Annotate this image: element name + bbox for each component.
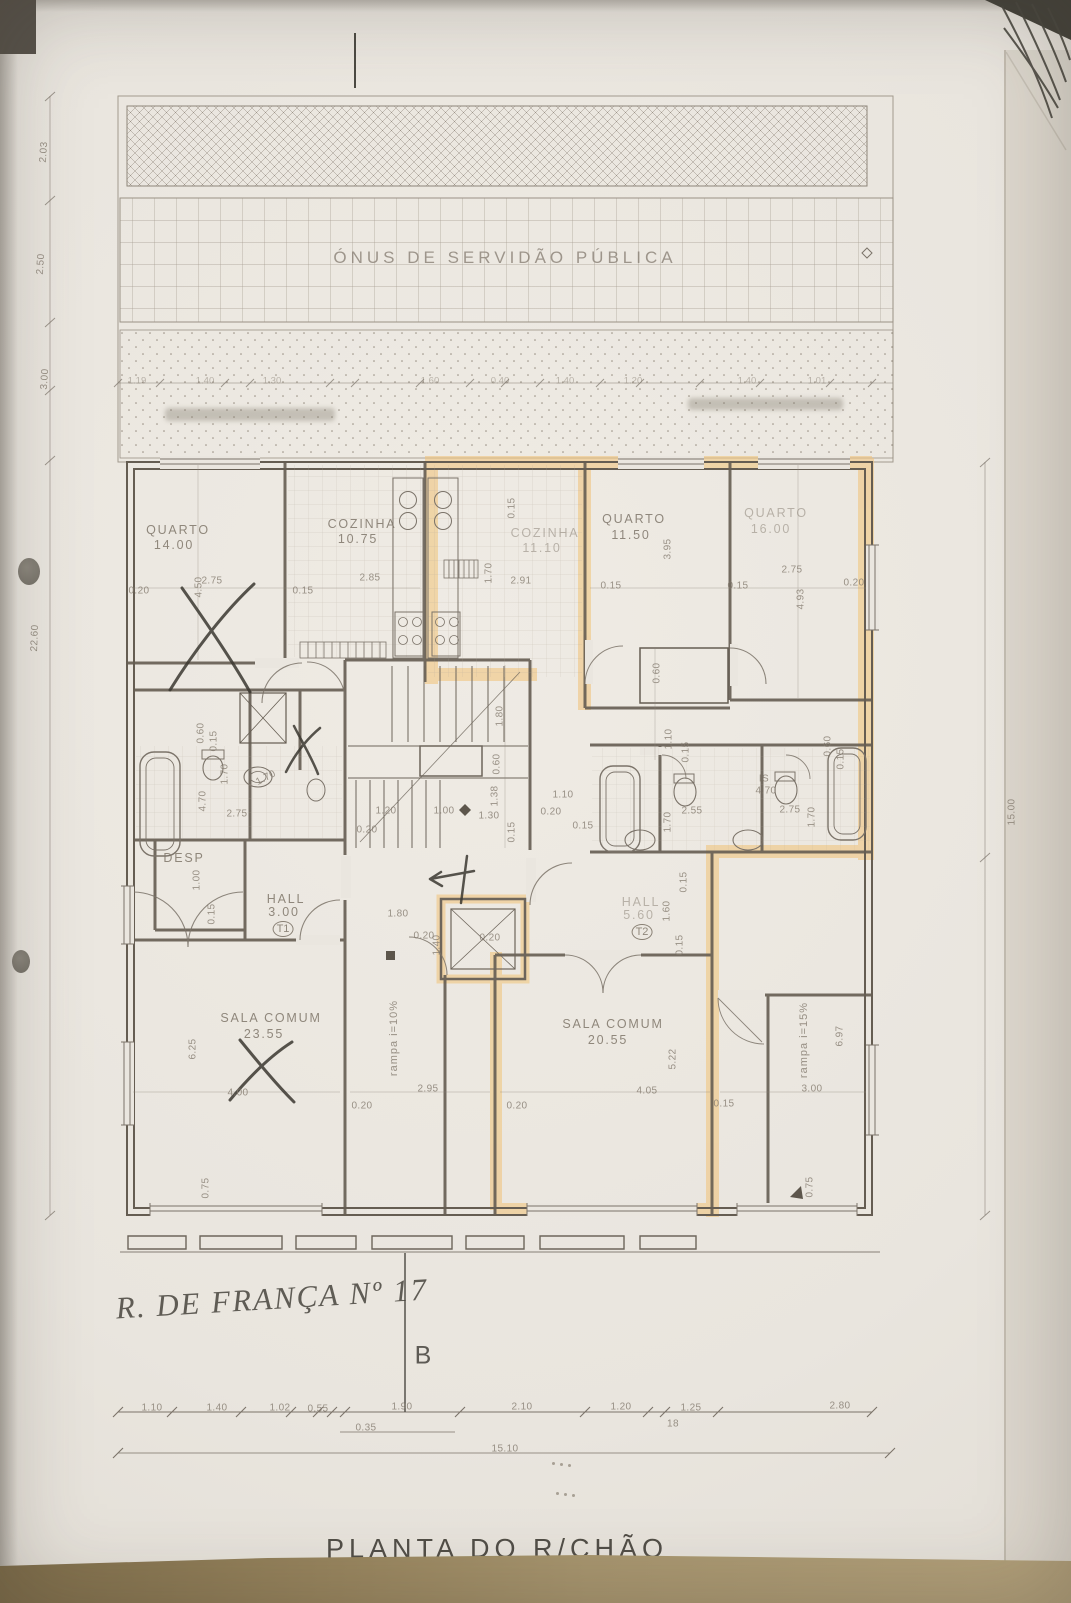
dim-label: 1.70 <box>807 806 818 827</box>
dim-label: 1.10 <box>141 1403 162 1414</box>
room-label-quarto-1: QUARTO <box>146 523 210 537</box>
dim-label: 18 <box>667 1419 679 1430</box>
dim-label: 1.01 <box>808 376 827 387</box>
dim-label: 2.80 <box>829 1401 850 1412</box>
room-label-sala-2: SALA COMUM <box>562 1017 663 1031</box>
ink-blob <box>12 950 30 973</box>
dim-label: 0.15 <box>836 748 847 769</box>
dim-label: 0.20 <box>506 1101 527 1112</box>
dim-label: 3.00 <box>801 1084 822 1095</box>
dot-mark <box>572 1494 575 1497</box>
illegible-stamp <box>165 408 335 421</box>
dim-label: 1.20 <box>610 1402 631 1413</box>
dim-label: 2.50 <box>35 253 47 275</box>
dim-label: 0.20 <box>356 825 377 836</box>
dim-label: 1.20 <box>375 806 396 817</box>
dim-label: 4.05 <box>636 1086 657 1097</box>
room-area-sala-2: 20.55 <box>588 1033 628 1047</box>
illegible-stamp <box>688 398 843 410</box>
dim-label: 0.15 <box>292 586 313 597</box>
dim-label: 0.15 <box>507 821 518 842</box>
dim-label: 1.80 <box>387 909 408 920</box>
photo-of-floor-plan: ÓNUS DE SERVIDÃO PÚBLICA QUARTO14.00COZI… <box>0 0 1071 1603</box>
dim-label: 1.25 <box>680 1403 701 1414</box>
dim-label: 6.97 <box>835 1025 846 1046</box>
dot-mark <box>560 1463 563 1466</box>
ramp-label-left: rampa i=10% <box>388 1000 400 1076</box>
dim-label: 1.40 <box>556 376 575 387</box>
dim-label: 1.40 <box>432 934 443 955</box>
dim-label: 0.15 <box>713 1099 734 1110</box>
dim-label: 4.93 <box>796 588 807 609</box>
dim-label: 0.15 <box>675 934 686 955</box>
dim-label: 3.00 <box>39 368 51 390</box>
room-label-quarto-3: QUARTO <box>744 506 808 520</box>
dim-label: 0.60 <box>492 753 503 774</box>
dim-label: 1.30 <box>478 811 499 822</box>
room-area-quarto-1: 14.00 <box>154 538 194 552</box>
room-area-is: 4.70 <box>755 786 776 797</box>
room-label-quarto-2: QUARTO <box>602 512 666 526</box>
dim-label: 0.20 <box>128 586 149 597</box>
dim-label: 1.80 <box>495 705 506 726</box>
room-label-sala-1: SALA COMUM <box>220 1011 321 1025</box>
dim-label: 0.20 <box>479 933 500 944</box>
dim-label: 0.15 <box>600 581 621 592</box>
dim-label: 0.15 <box>681 741 692 762</box>
dim-label: 1.70 <box>484 562 495 583</box>
dim-label: 0.15 <box>507 497 518 518</box>
dim-label: 1.02 <box>269 1403 290 1414</box>
dim-label: 0.55 <box>307 1404 328 1415</box>
unit-badge-t1: T1 <box>273 921 294 937</box>
room-area-sala-1: 23.55 <box>244 1027 284 1041</box>
dim-label: 1.30 <box>263 376 282 387</box>
dim-label: 2.91 <box>510 576 531 587</box>
dim-label: 0.15 <box>209 730 220 751</box>
dim-label: 1.60 <box>421 376 440 387</box>
section-letter: B <box>415 1342 432 1371</box>
dim-label: 5.22 <box>668 1048 679 1069</box>
room-area-quarto-2: 11.50 <box>611 528 650 542</box>
room-area-cozinha-2: 11.10 <box>522 541 561 555</box>
dim-label: 0.20 <box>351 1101 372 1112</box>
room-area-hall-t1: 3.00 <box>268 905 300 919</box>
dim-label: 1.90 <box>391 1402 412 1413</box>
dim-label: 0.15 <box>207 903 218 924</box>
dim-label: 0.75 <box>805 1176 816 1197</box>
dim-label: 0.75 <box>201 1177 212 1198</box>
dim-label: 1.00 <box>433 806 454 817</box>
unit-badge-t2: T2 <box>632 924 653 940</box>
dim-label: 0.60 <box>823 735 834 756</box>
dot-mark <box>552 1462 555 1465</box>
dim-label: 2.55 <box>681 806 702 817</box>
dim-label: 1.38 <box>490 785 501 806</box>
ink-blob <box>18 558 40 585</box>
dot-mark <box>564 1493 567 1496</box>
dim-label: 1.40 <box>196 376 215 387</box>
dim-label: 2.03 <box>38 141 50 163</box>
room-area-cozinha-1: 10.75 <box>338 532 378 546</box>
dim-label: 0.60 <box>196 722 207 743</box>
dim-label: 0.15 <box>679 871 690 892</box>
room-label-desp: DESP <box>163 851 204 865</box>
dim-label: 2.75 <box>781 565 802 576</box>
ramp-label-right: rampa i=15% <box>798 1002 810 1078</box>
dot-mark <box>568 1464 571 1467</box>
room-area-quarto-3: 16.00 <box>751 522 791 536</box>
dim-label: 2.85 <box>359 573 380 584</box>
dim-label: 0.40 <box>491 376 510 387</box>
dim-label: 0.15 <box>572 821 593 832</box>
dim-label: 2.75 <box>226 809 247 820</box>
dim-label: 2.95 <box>417 1084 438 1095</box>
dim-label: 0.20 <box>540 807 561 818</box>
dim-label: 1.70 <box>254 768 278 788</box>
dim-label: 1.00 <box>192 869 203 890</box>
room-label-cozinha-1: COZINHA <box>328 517 397 531</box>
room-label-hall-t1: HALL <box>267 892 305 906</box>
dim-label: 15.00 <box>1007 798 1018 825</box>
room-label-is: IS <box>759 774 769 785</box>
dim-label: 6.25 <box>188 1038 199 1059</box>
dim-label: 2.10 <box>511 1402 532 1413</box>
plan-labels-layer: QUARTO14.00COZINHA10.75COZINHA11.10QUART… <box>0 0 1071 1603</box>
dim-label: 3.95 <box>663 538 674 559</box>
dim-label: 15.10 <box>491 1444 518 1455</box>
dim-label: 1.10 <box>552 790 573 801</box>
dim-label: 0.60 <box>652 662 663 683</box>
dim-label: 4.00 <box>227 1088 248 1099</box>
dim-label: 22.60 <box>29 624 41 651</box>
dim-label: 2.75 <box>779 805 800 816</box>
dim-label: 1.70 <box>663 811 674 832</box>
dim-label: 0.20 <box>843 578 864 589</box>
dim-label: 1.40 <box>206 1403 227 1414</box>
dim-label: 1.60 <box>662 900 673 921</box>
dim-label: 4.70 <box>198 790 209 811</box>
dim-label: 1.70 <box>220 763 231 784</box>
room-label-cozinha-2: COZINHA <box>511 526 580 540</box>
dim-label: 0.15 <box>727 581 748 592</box>
room-label-hall-t2: HALL <box>622 895 660 909</box>
dim-label: 1.20 <box>624 376 643 387</box>
dot-mark <box>556 1492 559 1495</box>
dim-label: 1.19 <box>128 376 147 387</box>
dim-label: 1.40 <box>738 376 757 387</box>
dim-label: 1.10 <box>664 728 675 749</box>
dim-label: 0.35 <box>355 1423 376 1434</box>
room-area-hall-t2: 5.60 <box>623 908 655 922</box>
dim-label: 2.75 <box>201 576 222 587</box>
